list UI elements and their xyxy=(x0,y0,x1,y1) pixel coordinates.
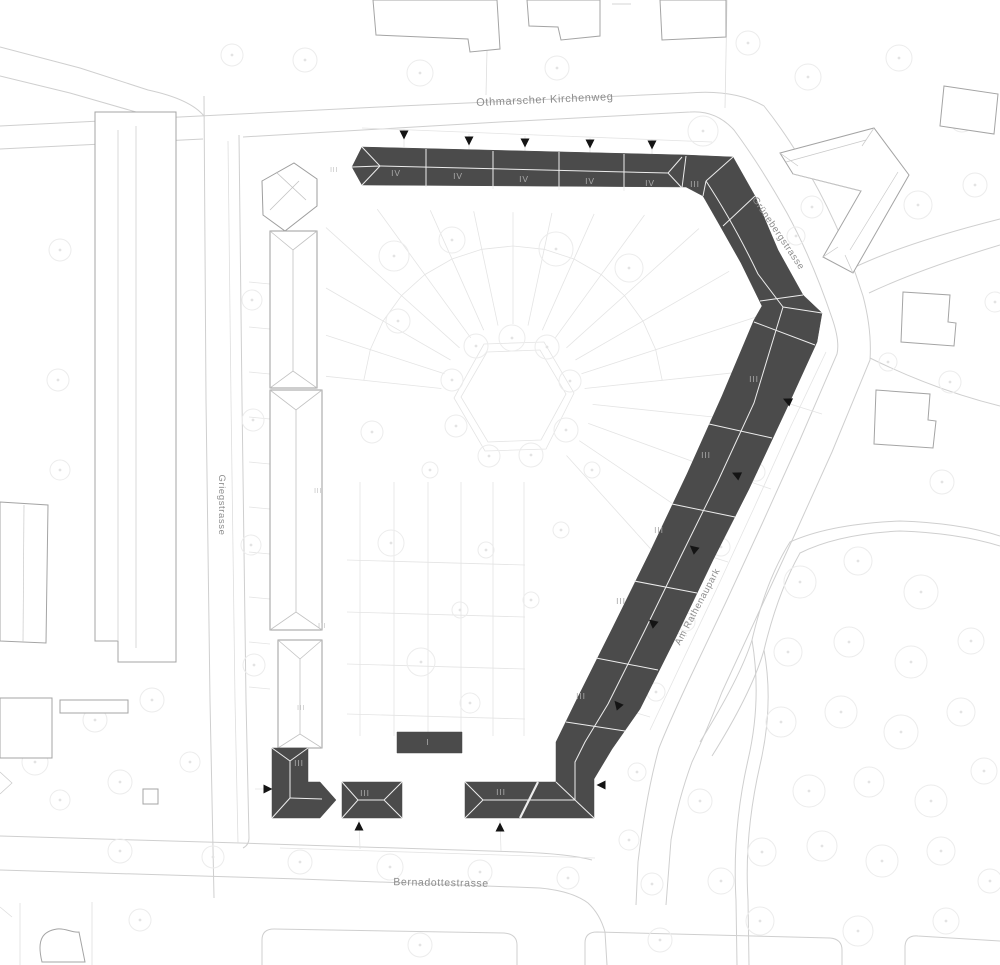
floor-count-label: III xyxy=(701,450,711,460)
tree-center-dot xyxy=(898,57,901,60)
garden-parcel-line xyxy=(582,316,760,374)
new-buildings-layer xyxy=(272,147,822,818)
floor-count-label: III xyxy=(360,788,370,798)
tree-center-dot xyxy=(251,299,254,302)
entrance-arrow-icon xyxy=(355,822,364,831)
street-label: Othmarscher Kirchenweg xyxy=(476,91,614,109)
garden-parcel-line xyxy=(347,612,525,617)
tree-center-dot xyxy=(189,761,192,764)
floor-count-label: III xyxy=(496,787,506,797)
context-building xyxy=(40,929,85,962)
tree-center-dot xyxy=(780,721,783,724)
entrance-arrow-icon xyxy=(648,141,657,150)
tree-center-dot xyxy=(459,609,462,612)
context-building xyxy=(373,0,500,52)
floor-count-label-existing: III xyxy=(314,486,322,495)
tree-center-dot xyxy=(34,761,37,764)
tree-center-dot xyxy=(530,454,533,457)
tree-center-dot xyxy=(761,851,764,854)
tree-center-dot xyxy=(920,591,923,594)
tree-center-dot xyxy=(974,184,977,187)
tree-center-dot xyxy=(475,345,478,348)
tree-center-dot xyxy=(565,429,568,432)
tree-center-dot xyxy=(252,419,255,422)
new-building xyxy=(352,147,822,818)
tree-center-dot xyxy=(429,469,432,472)
tree-center-dot xyxy=(59,469,62,472)
garden-parcel-line xyxy=(326,228,460,348)
tree-center-dot xyxy=(451,379,454,382)
street-line xyxy=(700,521,1000,742)
floor-count-label: IV xyxy=(519,174,529,184)
existing-rowhouses-layer xyxy=(262,163,322,748)
garden-parcel-line xyxy=(461,350,566,442)
garden-parcel-line xyxy=(528,213,552,326)
entrance-arrow-icon xyxy=(521,139,530,148)
floor-count-label: III xyxy=(576,691,586,701)
tree-center-dot xyxy=(636,771,639,774)
tree-center-dot xyxy=(451,239,454,242)
entrance-arrow-icon xyxy=(264,785,273,794)
garden-parcel-line xyxy=(347,664,525,669)
tree-center-dot xyxy=(910,661,913,664)
street-line xyxy=(204,96,214,898)
tree-center-dot xyxy=(857,560,860,563)
tree-center-dot xyxy=(787,651,790,654)
garden-parcel-line xyxy=(326,288,451,360)
tree-center-dot xyxy=(560,529,563,532)
context-building xyxy=(0,698,52,758)
garden-parcel-line xyxy=(249,552,270,554)
garden-parcel-line xyxy=(588,423,693,461)
garden-parcel-line xyxy=(326,376,441,388)
tree-center-dot xyxy=(231,54,234,57)
tree-center-dot xyxy=(567,877,570,880)
existing-rowhouse xyxy=(270,231,317,388)
garden-parcel-line xyxy=(249,327,270,329)
tree-center-dot xyxy=(720,880,723,883)
tree-center-dot xyxy=(659,939,662,942)
tree-center-dot xyxy=(807,76,810,79)
floor-count-label-existing: III xyxy=(297,703,305,712)
tree-center-dot xyxy=(304,59,307,62)
garden-parcel-line xyxy=(567,456,651,550)
garden-parcel-line xyxy=(555,215,644,338)
garden-parcel-line xyxy=(474,211,498,325)
floor-count-label: III xyxy=(654,525,664,535)
tree-center-dot xyxy=(371,431,374,434)
context-building xyxy=(780,128,909,273)
street-line xyxy=(0,76,136,112)
garden-parcel-line xyxy=(542,214,594,330)
tree-center-dot xyxy=(530,599,533,602)
tree-center-dot xyxy=(119,781,122,784)
floor-count-label: I xyxy=(426,737,429,747)
tree-center-dot xyxy=(556,67,559,70)
tree-center-dot xyxy=(628,267,631,270)
context-building xyxy=(527,0,600,40)
tree-center-dot xyxy=(555,248,558,251)
tree-center-dot xyxy=(139,919,142,922)
tree-center-dot xyxy=(651,883,654,886)
garden-parcel-line xyxy=(585,373,734,389)
tree-center-dot xyxy=(699,800,702,803)
entrance-arrow-icon xyxy=(496,823,505,832)
tree-center-dot xyxy=(983,770,986,773)
tree-center-dot xyxy=(469,702,472,705)
context-building xyxy=(874,390,936,448)
garden-parcel-line xyxy=(249,597,270,599)
tree-center-dot xyxy=(393,255,396,258)
floor-count-label: IV xyxy=(585,176,595,186)
tree-center-dot xyxy=(808,790,811,793)
tree-center-dot xyxy=(868,781,871,784)
street-line xyxy=(262,929,517,965)
floor-count-label-existing: III xyxy=(318,621,326,630)
floor-count-label: III xyxy=(294,758,304,768)
garden-parcel-line xyxy=(326,335,445,374)
tree-center-dot xyxy=(989,880,992,883)
garden-parcel-line xyxy=(454,342,574,451)
tree-center-dot xyxy=(569,380,572,383)
street-line xyxy=(228,141,238,843)
tree-center-dot xyxy=(941,481,944,484)
tree-center-dot xyxy=(57,379,60,382)
tree-center-dot xyxy=(488,455,491,458)
tree-center-dot xyxy=(821,845,824,848)
garden-parcel-line xyxy=(249,687,270,689)
tree-center-dot xyxy=(546,346,549,349)
tree-center-dot xyxy=(59,249,62,252)
context-building xyxy=(60,700,128,713)
garden-parcel-line xyxy=(567,229,699,348)
tree-center-dot xyxy=(59,799,62,802)
street-line xyxy=(239,135,249,848)
tree-center-dot xyxy=(420,661,423,664)
tree-center-dot xyxy=(212,856,215,859)
site-plan-page: Othmarscher KirchenwegGrünebergstrasseAm… xyxy=(0,0,1000,965)
garden-parcel-line xyxy=(579,441,672,504)
context-building xyxy=(940,86,998,134)
tree-center-dot xyxy=(479,871,482,874)
garden-parcel-line xyxy=(249,372,270,374)
site-plan-map: Othmarscher KirchenwegGrünebergstrasseAm… xyxy=(0,0,1000,965)
tree-center-dot xyxy=(857,930,860,933)
tree-center-dot xyxy=(390,542,393,545)
street-line xyxy=(0,47,204,116)
floor-count-label: III xyxy=(690,179,700,189)
garden-parcel-line xyxy=(593,404,714,417)
existing-rowhouse xyxy=(262,163,317,231)
tree-center-dot xyxy=(930,800,933,803)
tree-center-dot xyxy=(397,320,400,323)
tree-center-dot xyxy=(419,72,422,75)
tree-center-dot xyxy=(848,641,851,644)
street-line xyxy=(585,932,842,965)
garden-parcel-line xyxy=(347,560,525,565)
tree-center-dot xyxy=(945,920,948,923)
tree-center-dot xyxy=(702,130,705,133)
tree-center-dot xyxy=(759,920,762,923)
tree-center-dot xyxy=(881,860,884,863)
tree-center-dot xyxy=(250,544,253,547)
tree-center-dot xyxy=(253,664,256,667)
tree-center-dot xyxy=(299,861,302,864)
floor-count-label: III xyxy=(749,374,759,384)
entrance-arrow-icon xyxy=(586,140,595,149)
context-building xyxy=(143,789,158,804)
tree-center-dot xyxy=(917,204,920,207)
street-label: Bernadottestrasse xyxy=(393,876,489,890)
entrance-arrow-icon xyxy=(400,131,409,140)
garden-parcel-line xyxy=(362,128,712,142)
tree-center-dot xyxy=(591,469,594,472)
floor-count-label: IV xyxy=(645,178,655,188)
tree-center-dot xyxy=(949,381,952,384)
garden-parcel-line xyxy=(249,507,270,509)
garden-parcel-line xyxy=(249,417,270,419)
tree-center-dot xyxy=(628,839,631,842)
context-building xyxy=(95,112,176,662)
tree-center-dot xyxy=(151,699,154,702)
street-line xyxy=(869,245,1000,293)
street-line xyxy=(712,531,1000,756)
floor-count-label: III xyxy=(616,596,626,606)
garden-parcel-line xyxy=(575,271,729,360)
tree-center-dot xyxy=(485,549,488,552)
garden-parcel-line xyxy=(249,282,270,284)
tree-center-dot xyxy=(994,301,997,304)
street-line xyxy=(0,836,592,860)
tree-icon xyxy=(985,292,1000,312)
tree-center-dot xyxy=(970,640,973,643)
tree-center-dot xyxy=(940,850,943,853)
tree-center-dot xyxy=(795,235,798,238)
tree-center-dot xyxy=(455,425,458,428)
tree-center-dot xyxy=(960,711,963,714)
floor-count-label: IV xyxy=(453,171,463,181)
tree-center-dot xyxy=(94,719,97,722)
entrance-arrow-icon xyxy=(465,137,474,146)
tree-center-dot xyxy=(655,691,658,694)
garden-parcel-line xyxy=(249,642,270,644)
garden-parcel-line xyxy=(790,404,822,414)
context-building xyxy=(660,0,726,40)
tree-center-dot xyxy=(747,42,750,45)
street-line xyxy=(905,936,1000,965)
tree-center-dot xyxy=(119,850,122,853)
tree-center-dot xyxy=(811,206,814,209)
context-building xyxy=(901,292,956,346)
tree-center-dot xyxy=(840,711,843,714)
garden-parcel-line xyxy=(249,462,270,464)
street-label: Griegstrasse xyxy=(216,474,227,535)
tree-center-dot xyxy=(900,731,903,734)
street-line xyxy=(747,650,768,965)
garden-parcel-line xyxy=(347,714,525,719)
tree-center-dot xyxy=(419,944,422,947)
tree-center-dot xyxy=(389,866,392,869)
street-line xyxy=(0,870,607,965)
floor-count-label: IV xyxy=(391,168,401,178)
street-line xyxy=(0,907,12,917)
entrance-arrow-icon xyxy=(597,781,606,790)
tree-center-dot xyxy=(887,361,890,364)
tree-center-dot xyxy=(799,581,802,584)
context-roof-ridge xyxy=(0,772,12,794)
floor-count-label-existing: III xyxy=(330,165,338,174)
tree-center-dot xyxy=(511,337,514,340)
